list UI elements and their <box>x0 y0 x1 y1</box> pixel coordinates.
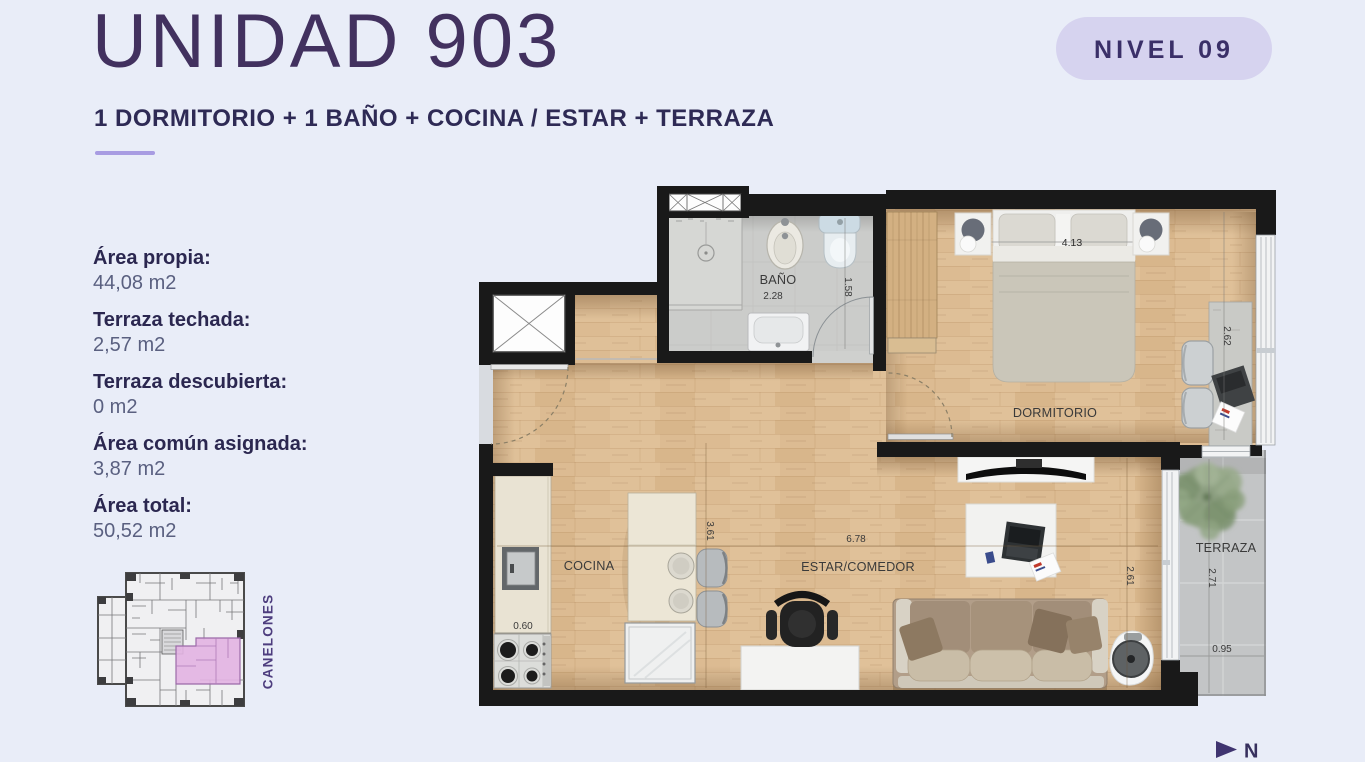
svg-text:0.60: 0.60 <box>513 621 533 632</box>
svg-text:4.13: 4.13 <box>1062 237 1083 249</box>
svg-text:BAÑO: BAÑO <box>760 273 797 287</box>
svg-text:3.61: 3.61 <box>704 521 715 541</box>
svg-text:2.61: 2.61 <box>1124 566 1135 586</box>
svg-text:COCINA: COCINA <box>564 559 615 573</box>
svg-text:TERRAZA: TERRAZA <box>1196 541 1257 555</box>
svg-text:2.71: 2.71 <box>1206 568 1217 588</box>
svg-text:ESTAR/COMEDOR: ESTAR/COMEDOR <box>801 560 915 574</box>
svg-text:DORMITORIO: DORMITORIO <box>1013 406 1097 420</box>
svg-text:6.78: 6.78 <box>846 534 866 545</box>
svg-text:2.28: 2.28 <box>763 291 783 302</box>
svg-text:0.95: 0.95 <box>1212 644 1232 655</box>
svg-text:1.58: 1.58 <box>842 277 853 297</box>
svg-text:2.62: 2.62 <box>1221 326 1232 346</box>
svg-text:N: N <box>1244 741 1258 762</box>
